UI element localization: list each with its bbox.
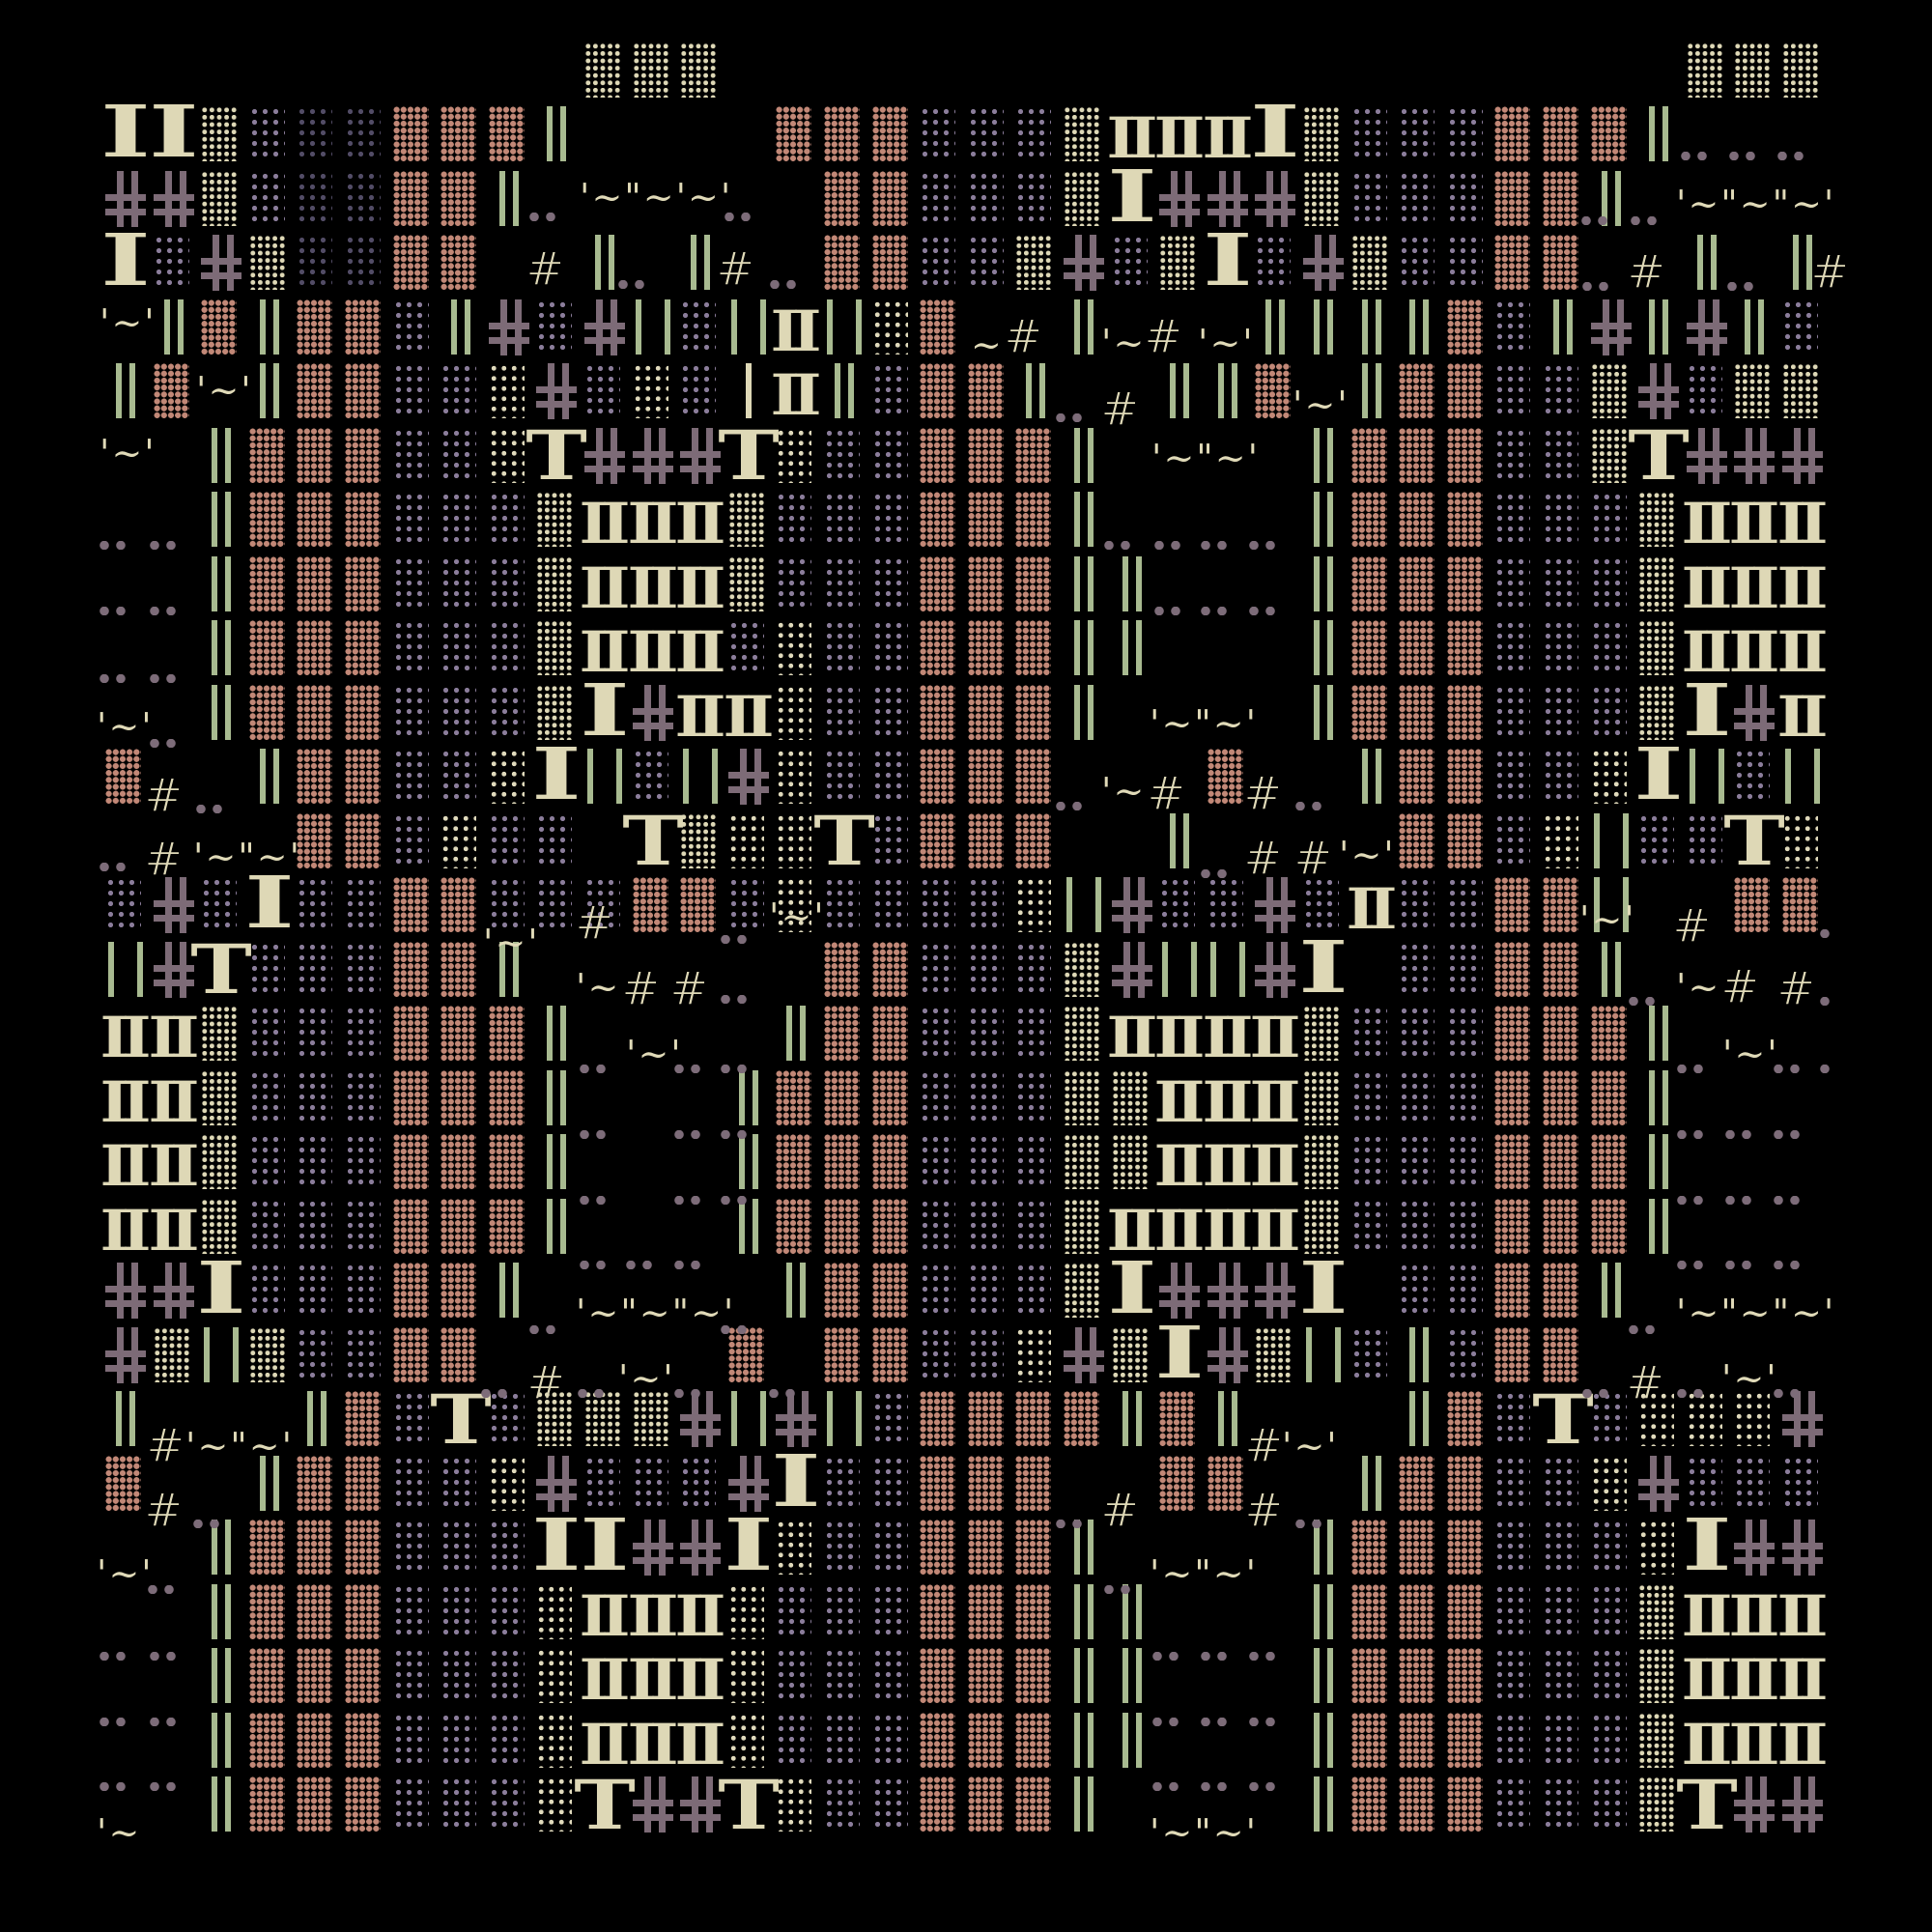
cream-dot-block-dense bbox=[1064, 106, 1099, 161]
purple-dot-block bbox=[1447, 235, 1483, 290]
cream-dot-block-dense bbox=[1064, 1199, 1099, 1254]
dot-pair-motif bbox=[724, 213, 751, 221]
hash-motif: # bbox=[145, 1488, 183, 1532]
salmon-dot-block bbox=[824, 1134, 860, 1189]
purple-dot-block bbox=[440, 492, 476, 547]
purple-dot-block bbox=[728, 620, 764, 675]
cream-dot-block-sparse bbox=[489, 749, 525, 804]
salmon-dot-block bbox=[1015, 556, 1051, 611]
green-double-bar-glyph bbox=[1303, 556, 1344, 611]
purple-dot-block bbox=[1447, 1070, 1483, 1125]
salmon-dot-block bbox=[440, 1199, 476, 1254]
cream-dot-block-dense bbox=[1734, 43, 1770, 98]
purple-dot-block bbox=[1112, 235, 1148, 290]
cream-dot-block-dense bbox=[1734, 363, 1770, 418]
purple-dot-block bbox=[920, 106, 955, 161]
salmon-dot-block bbox=[776, 1134, 811, 1189]
serif-double-i-glyph: II bbox=[1253, 1199, 1298, 1255]
cream-dot-block-sparse bbox=[1687, 1391, 1722, 1446]
salmon-dot-block bbox=[1015, 1776, 1051, 1832]
cream-dot-block-sparse bbox=[776, 1776, 811, 1832]
dot-pair-motif bbox=[1774, 1065, 1800, 1073]
purple-dot-block bbox=[824, 1584, 860, 1639]
purple-dot-block bbox=[297, 1070, 332, 1125]
salmon-dot-block bbox=[968, 685, 1004, 740]
serif-double-i-glyph: II bbox=[678, 556, 724, 612]
dot-pair-motif bbox=[529, 1325, 555, 1334]
salmon-dot-block bbox=[1494, 235, 1530, 290]
dot-pair-motif bbox=[1677, 1065, 1703, 1073]
tilde-quote-motif: '~"~"~' bbox=[1676, 1294, 1835, 1331]
green-double-bar-glyph bbox=[1159, 813, 1200, 868]
green-double-bar-glyph bbox=[1303, 1648, 1344, 1703]
hash-motif: # bbox=[1245, 1488, 1283, 1532]
salmon-dot-block bbox=[968, 1456, 1004, 1511]
cream-dot-block-dense bbox=[1159, 235, 1195, 290]
purple-dot-block bbox=[393, 1713, 429, 1768]
salmon-dot-block bbox=[824, 106, 860, 161]
serif-double-i-glyph: II bbox=[1157, 1006, 1203, 1062]
salmon-dot-block bbox=[1351, 1648, 1387, 1703]
salmon-dot-block bbox=[1447, 1713, 1483, 1768]
salmon-dot-block bbox=[1447, 1776, 1483, 1832]
cream-dot-block-dense bbox=[1064, 1006, 1099, 1061]
purple-dot-block bbox=[1351, 1199, 1387, 1254]
serif-t-glyph: T bbox=[724, 1776, 773, 1833]
salmon-dot-block bbox=[393, 1263, 429, 1318]
green-double-bar-glyph bbox=[1064, 620, 1104, 675]
mauve-double-cross-glyph bbox=[1782, 1776, 1823, 1833]
cream-dot-block-dense bbox=[536, 620, 572, 675]
serif-double-i-glyph: II bbox=[102, 1199, 148, 1255]
purple-dot-block bbox=[489, 556, 525, 611]
cream-dot-block-dense bbox=[584, 43, 620, 98]
purple-dot-block bbox=[776, 556, 811, 611]
purple-dot-block bbox=[1303, 877, 1339, 932]
dot-pair-motif bbox=[674, 1196, 700, 1205]
purple-dot-block bbox=[249, 106, 285, 161]
green-double-bar-glyph bbox=[1303, 299, 1344, 355]
purple-dot-block bbox=[824, 428, 860, 483]
purple-dot-block bbox=[1351, 106, 1387, 161]
purple-dot-block bbox=[1399, 1134, 1435, 1189]
hash-motif: # bbox=[1244, 836, 1282, 880]
dot-pair-motif bbox=[626, 1261, 652, 1269]
purple-dot-block bbox=[1543, 1713, 1578, 1768]
purple-dot-block bbox=[1591, 1584, 1627, 1639]
serif-t-glyph: T bbox=[197, 942, 246, 998]
serif-t-glyph: T bbox=[437, 1391, 486, 1447]
salmon-dot-block bbox=[872, 171, 908, 226]
purple-dot-block bbox=[872, 1584, 908, 1639]
purple-dot-block bbox=[920, 942, 955, 997]
tilde-quote-motif: '~"~"~' bbox=[576, 1294, 735, 1331]
cream-dot-block-dense bbox=[1638, 492, 1674, 547]
purple-dot-block bbox=[680, 299, 716, 355]
dot-pair-motif bbox=[1774, 1196, 1800, 1205]
purple-dot-block bbox=[680, 363, 716, 418]
hash-motif: # bbox=[1721, 964, 1759, 1009]
serif-double-i-glyph: II bbox=[1349, 877, 1394, 933]
tilde-quote-motif: '~"~' bbox=[1150, 705, 1258, 742]
purple-dot-block bbox=[440, 1648, 476, 1703]
purple-dot-block bbox=[249, 1070, 285, 1125]
mauve-double-cross-glyph bbox=[154, 877, 194, 933]
salmon-dot-block bbox=[872, 1070, 908, 1125]
salmon-dot-block bbox=[297, 685, 332, 740]
salmon-dot-block bbox=[393, 1199, 429, 1254]
tilde-quote-motif: '~' bbox=[99, 435, 156, 471]
purple-dot-block bbox=[440, 556, 476, 611]
purple-dot-block bbox=[1494, 1520, 1530, 1575]
salmon-dot-block bbox=[249, 1648, 285, 1703]
salmon-dot-block bbox=[968, 1584, 1004, 1639]
green-double-bar-glyph bbox=[536, 106, 577, 161]
salmon-dot-block bbox=[1543, 1327, 1578, 1382]
serif-double-i-glyph: II bbox=[725, 685, 771, 741]
mauve-double-cross-glyph bbox=[584, 299, 625, 355]
salmon-dot-block bbox=[1591, 1199, 1627, 1254]
salmon-dot-block bbox=[345, 1391, 381, 1446]
green-double-bar-glyph bbox=[536, 1006, 577, 1061]
hash-motif: # bbox=[1101, 1488, 1139, 1532]
tilde-quote-motif: '~' bbox=[1293, 386, 1350, 423]
salmon-dot-block bbox=[1447, 813, 1483, 868]
purple-dot-block bbox=[1591, 556, 1627, 611]
dim-purple-dot-block bbox=[297, 171, 332, 226]
serif-double-i-glyph: II bbox=[1732, 1584, 1777, 1640]
salmon-dot-block bbox=[1351, 1776, 1387, 1832]
salmon-dot-block bbox=[968, 1391, 1004, 1446]
salmon-dot-block bbox=[1447, 492, 1483, 547]
textmode-art-canvas: IIIIIIIIIIIIIIIITTTIIIIIIIIIIIIIIIIIIIII… bbox=[0, 0, 1932, 1932]
salmon-dot-block bbox=[920, 685, 955, 740]
salmon-dot-block bbox=[201, 299, 237, 355]
serif-double-i-glyph: II bbox=[1157, 1199, 1203, 1255]
purple-dot-block bbox=[489, 1648, 525, 1703]
purple-dot-block bbox=[489, 1776, 525, 1832]
tilde-quote-motif: '~ bbox=[1676, 969, 1720, 1006]
hash-motif: # bbox=[1005, 314, 1042, 358]
tilde-quote-motif: '~ bbox=[1101, 325, 1146, 361]
cream-dot-block-dense bbox=[1112, 1070, 1148, 1125]
cream-dot-block-dense bbox=[1351, 235, 1387, 290]
dot-pair-motif bbox=[580, 1261, 606, 1269]
serif-double-i-glyph: II bbox=[630, 492, 675, 548]
purple-dot-block bbox=[1494, 1584, 1530, 1639]
cream-dot-block-sparse bbox=[1591, 749, 1627, 804]
salmon-dot-block bbox=[776, 106, 811, 161]
dot-pair-motif bbox=[1152, 1718, 1179, 1726]
salmon-dot-block bbox=[824, 1006, 860, 1061]
purple-dot-block bbox=[440, 749, 476, 804]
cream-dot-block-dense bbox=[1064, 171, 1099, 226]
dot-pair-motif bbox=[1201, 1652, 1227, 1661]
salmon-dot-block bbox=[393, 106, 429, 161]
purple-dot-block bbox=[249, 171, 285, 226]
salmon-dot-block bbox=[633, 877, 668, 932]
dot-pair-motif bbox=[1681, 152, 1707, 160]
mauve-double-cross-glyph bbox=[633, 1520, 673, 1576]
dot-pair-motif bbox=[1152, 1782, 1179, 1791]
purple-dot-block bbox=[1494, 299, 1530, 355]
dot-pair-motif bbox=[1249, 1652, 1275, 1661]
serif-i-glyph: I bbox=[526, 749, 587, 805]
dot-pair-motif bbox=[1249, 1718, 1275, 1726]
purple-dot-block bbox=[776, 1713, 811, 1768]
cream-dot-block-sparse bbox=[728, 813, 764, 868]
cream-dot-block-sparse bbox=[776, 620, 811, 675]
salmon-dot-block bbox=[1543, 1199, 1578, 1254]
salmon-dot-block bbox=[872, 1006, 908, 1061]
salmon-dot-block bbox=[824, 1199, 860, 1254]
tilde-quote-motif: '~"~' bbox=[1150, 1555, 1258, 1592]
serif-t-glyph: T bbox=[1730, 813, 1779, 869]
salmon-dot-block bbox=[1591, 106, 1627, 161]
serif-double-i-glyph: II bbox=[582, 620, 627, 676]
salmon-dot-block bbox=[1543, 877, 1578, 932]
purple-dot-block bbox=[345, 1327, 381, 1382]
salmon-dot-block bbox=[297, 1520, 332, 1575]
salmon-dot-block bbox=[1447, 556, 1483, 611]
salmon-dot-block bbox=[393, 1070, 429, 1125]
cream-dot-block-dense bbox=[1064, 942, 1099, 997]
green-double-bar-glyph bbox=[1112, 556, 1152, 611]
salmon-dot-block bbox=[489, 1134, 525, 1189]
purple-dot-block bbox=[872, 813, 908, 868]
salmon-dot-block bbox=[440, 171, 476, 226]
salmon-dot-block bbox=[1447, 1648, 1483, 1703]
purple-dot-block bbox=[489, 813, 525, 868]
dot-pair-motif bbox=[578, 1389, 604, 1398]
purple-dot-block bbox=[1494, 620, 1530, 675]
tilde-quote-motif: '~"~' bbox=[193, 838, 301, 875]
cream-dot-block-dense bbox=[154, 1327, 189, 1382]
tilde-quote-motif: '~' bbox=[1721, 1360, 1778, 1397]
purple-dot-block bbox=[1543, 492, 1578, 547]
purple-dot-block bbox=[393, 1520, 429, 1575]
serif-i-glyph: I bbox=[1245, 106, 1306, 162]
dot-pair-motif bbox=[150, 1652, 176, 1661]
salmon-dot-block bbox=[1447, 1584, 1483, 1639]
dot-pair-motif bbox=[148, 1585, 174, 1594]
green-wide-bar-pair-glyph bbox=[633, 299, 673, 355]
cream-dot-block-dense bbox=[1303, 1134, 1339, 1189]
purple-dot-block bbox=[489, 1520, 525, 1575]
purple-dot-block bbox=[249, 1006, 285, 1061]
cream-dot-block-dense bbox=[201, 171, 237, 226]
purple-dot-block bbox=[536, 877, 572, 932]
cream-dot-block-dense bbox=[1303, 106, 1339, 161]
salmon-dot-block bbox=[920, 1584, 955, 1639]
tilde-quote-motif: '~' bbox=[769, 898, 826, 935]
green-double-bar-glyph bbox=[1112, 620, 1152, 675]
serif-double-i-glyph: II bbox=[102, 1006, 148, 1062]
tilde-quote-motif: '~' bbox=[97, 708, 154, 745]
cream-dot-block-sparse bbox=[776, 428, 811, 483]
purple-dot-block bbox=[920, 1134, 955, 1189]
salmon-dot-block bbox=[297, 749, 332, 804]
green-double-bar-glyph bbox=[728, 1199, 769, 1254]
salmon-dot-block bbox=[393, 171, 429, 226]
dot-pair-motif bbox=[99, 1652, 126, 1661]
salmon-dot-block bbox=[345, 685, 381, 740]
salmon-dot-block bbox=[1447, 1456, 1483, 1511]
cream-dot-block-dense bbox=[1255, 1327, 1291, 1382]
dot-pair-motif bbox=[1201, 1718, 1227, 1726]
salmon-dot-block bbox=[920, 1520, 955, 1575]
mauve-double-cross-glyph bbox=[1782, 1520, 1823, 1576]
serif-t-glyph: T bbox=[580, 1776, 629, 1833]
salmon-dot-block bbox=[440, 235, 476, 290]
salmon-dot-block bbox=[1447, 363, 1483, 418]
dot-pair-motif bbox=[1201, 607, 1227, 615]
serif-double-i-glyph: II bbox=[582, 556, 627, 612]
salmon-dot-block bbox=[1494, 877, 1530, 932]
hash-motif: # bbox=[1101, 386, 1139, 431]
purple-dot-block bbox=[393, 813, 429, 868]
serif-double-i-glyph: II bbox=[151, 1134, 196, 1190]
salmon-dot-block bbox=[297, 1456, 332, 1511]
green-double-bar-glyph bbox=[201, 685, 241, 740]
green-wide-bar-pair-glyph bbox=[1303, 1327, 1344, 1382]
salmon-dot-block bbox=[920, 813, 955, 868]
cream-dot-block-dense bbox=[1064, 1070, 1099, 1125]
salmon-dot-block bbox=[1494, 1070, 1530, 1125]
serif-double-i-glyph: II bbox=[630, 556, 675, 612]
purple-dot-block bbox=[1591, 1776, 1627, 1832]
cream-dot-block-sparse bbox=[1782, 813, 1818, 868]
salmon-dot-block bbox=[920, 1713, 955, 1768]
cream-dot-block-sparse bbox=[776, 1520, 811, 1575]
salmon-dot-block bbox=[1447, 620, 1483, 675]
purple-dot-block bbox=[1687, 1456, 1722, 1511]
cream-dot-block-dense bbox=[1782, 43, 1818, 98]
hash-motif: # bbox=[717, 246, 754, 291]
salmon-dot-block bbox=[1494, 1263, 1530, 1318]
purple-dot-block bbox=[393, 299, 429, 355]
purple-dot-block bbox=[1591, 1713, 1627, 1768]
purple-dot-block bbox=[1591, 492, 1627, 547]
dot-pair-motif bbox=[1104, 541, 1130, 550]
purple-dot-block bbox=[584, 1456, 620, 1511]
dot-pair-motif bbox=[1629, 997, 1655, 1006]
green-double-bar-glyph bbox=[1159, 363, 1200, 418]
green-double-bar-glyph bbox=[201, 1648, 241, 1703]
green-double-bar-glyph bbox=[1351, 749, 1392, 804]
purple-dot-block bbox=[105, 877, 141, 932]
hash-motif: # bbox=[622, 966, 660, 1010]
serif-i-glyph: I bbox=[1150, 1327, 1210, 1383]
green-double-bar-glyph bbox=[201, 556, 241, 611]
green-double-bar-glyph bbox=[1303, 1776, 1344, 1832]
purple-dot-block bbox=[872, 877, 908, 932]
serif-i-glyph: I bbox=[1293, 1263, 1354, 1319]
purple-dot-block bbox=[440, 363, 476, 418]
salmon-dot-block bbox=[1015, 428, 1051, 483]
cream-dot-block-sparse bbox=[776, 813, 811, 868]
serif-double-i-glyph: II bbox=[1684, 1648, 1729, 1704]
serif-double-i-glyph: II bbox=[1732, 1713, 1777, 1769]
purple-dot-block bbox=[1782, 1456, 1818, 1511]
purple-dot-block bbox=[249, 1263, 285, 1318]
salmon-dot-block bbox=[489, 106, 525, 161]
green-double-bar-glyph bbox=[1638, 106, 1679, 161]
salmon-dot-block bbox=[872, 235, 908, 290]
salmon-dot-block bbox=[297, 1584, 332, 1639]
salmon-dot-block bbox=[968, 1648, 1004, 1703]
purple-dot-block bbox=[393, 620, 429, 675]
salmon-dot-block bbox=[1494, 171, 1530, 226]
tilde-quote-motif: '~' bbox=[483, 924, 540, 961]
purple-dot-block bbox=[1782, 299, 1818, 355]
salmon-dot-block bbox=[1015, 813, 1051, 868]
dot-pair-motif bbox=[1201, 541, 1227, 550]
dot-pair-motif bbox=[1295, 1520, 1321, 1528]
salmon-dot-block bbox=[1015, 749, 1051, 804]
tilde-quote-motif: '~' bbox=[97, 1555, 154, 1592]
salmon-dot-block bbox=[1494, 1134, 1530, 1189]
serif-double-i-glyph: II bbox=[1205, 1199, 1250, 1255]
salmon-dot-block bbox=[345, 299, 381, 355]
salmon-dot-block bbox=[1494, 1199, 1530, 1254]
salmon-dot-block bbox=[920, 428, 955, 483]
purple-dot-block bbox=[776, 492, 811, 547]
serif-double-i-glyph: II bbox=[630, 1713, 675, 1769]
serif-double-i-glyph: II bbox=[1109, 1199, 1154, 1255]
green-double-bar-glyph bbox=[105, 1391, 146, 1446]
salmon-dot-block bbox=[1015, 1520, 1051, 1575]
green-double-bar-glyph bbox=[1015, 363, 1056, 418]
cream-dot-block-dense bbox=[1303, 1199, 1339, 1254]
salmon-dot-block bbox=[824, 171, 860, 226]
green-double-bar-glyph bbox=[1303, 685, 1344, 740]
salmon-dot-block bbox=[1591, 1006, 1627, 1061]
dot-pair-motif bbox=[1727, 282, 1753, 291]
purple-dot-block bbox=[297, 1199, 332, 1254]
serif-double-i-glyph: II bbox=[774, 363, 819, 419]
salmon-dot-block bbox=[1015, 492, 1051, 547]
salmon-dot-block bbox=[249, 1776, 285, 1832]
purple-dot-block bbox=[1399, 106, 1435, 161]
tilde-quote-motif: '~ bbox=[576, 969, 620, 1006]
purple-dot-block bbox=[1015, 106, 1051, 161]
purple-dot-block bbox=[920, 235, 955, 290]
purple-dot-block bbox=[968, 171, 1004, 226]
purple-dot-block bbox=[297, 1134, 332, 1189]
purple-dot-block bbox=[1494, 1776, 1530, 1832]
salmon-dot-block bbox=[393, 1327, 429, 1382]
purple-dot-block bbox=[1543, 1520, 1578, 1575]
mauve-double-cross-glyph bbox=[105, 171, 146, 227]
purple-dot-block bbox=[968, 1070, 1004, 1125]
green-double-bar-glyph bbox=[1255, 299, 1295, 355]
purple-dot-block bbox=[393, 1776, 429, 1832]
salmon-dot-block bbox=[440, 942, 476, 997]
salmon-dot-block bbox=[1399, 363, 1435, 418]
salmon-dot-block bbox=[154, 363, 189, 418]
green-double-bar-glyph bbox=[1734, 299, 1775, 355]
serif-t-glyph: T bbox=[724, 428, 773, 484]
serif-double-i-glyph: II bbox=[102, 1070, 148, 1126]
purple-dot-block bbox=[1591, 620, 1627, 675]
cream-dot-block-sparse bbox=[440, 813, 476, 868]
serif-i-glyph: I bbox=[1197, 235, 1258, 291]
purple-dot-block bbox=[920, 1070, 955, 1125]
salmon-dot-block bbox=[345, 1776, 381, 1832]
serif-double-i-glyph: II bbox=[1684, 556, 1729, 612]
hash-motif: # bbox=[526, 246, 564, 291]
